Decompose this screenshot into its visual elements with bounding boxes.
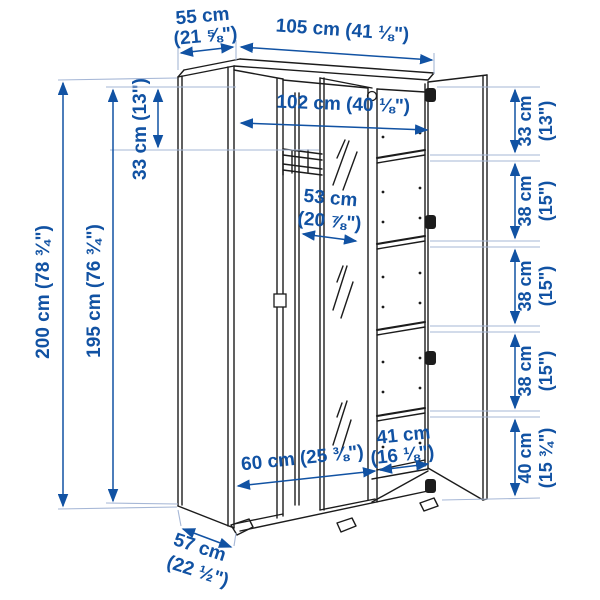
back-wall-edge-right — [377, 89, 425, 92]
dim-shelf-0-in: (13") — [536, 101, 556, 142]
dim-shelf-2-in: (15") — [536, 266, 556, 307]
dim-shelf-1-in: (15") — [536, 181, 556, 222]
base-and-feet — [231, 471, 438, 535]
dim-shelf-4-cm: 40 cm — [515, 432, 535, 483]
middle-foot — [337, 518, 356, 532]
dim-width-total: 105 cm (41 ⅛") — [241, 15, 434, 74]
dim-shelf-4: 40 cm (15 ¾") — [515, 420, 556, 495]
dim-shelf-2-cm: 38 cm — [515, 260, 535, 311]
product-dimension-diagram: 55 cm (21 ⅝") 105 cm (41 ⅛") 102 cm (40 … — [0, 0, 600, 600]
center-partition — [368, 88, 377, 502]
dim-mirror-door-cm: 53 cm — [303, 186, 359, 212]
dim-shelf-3-cm: 38 cm — [515, 345, 535, 396]
dim-left-section: 60 cm (25 ⅜") — [238, 442, 375, 486]
wardrobe-diagram-svg: 55 cm (21 ⅝") 105 cm (41 ⅛") 102 cm (40 … — [0, 0, 600, 600]
dim-rail-from-top-label: 33 cm (13") — [130, 78, 151, 180]
top-panel — [234, 59, 434, 80]
dim-shelf-3: 38 cm (15") — [515, 335, 556, 408]
hinge-icon — [425, 88, 436, 102]
clothes-rail — [283, 149, 322, 175]
dim-height-total-label: 200 cm (78 ¾") — [33, 225, 54, 359]
dim-left-section-label: 60 cm (25 ⅜") — [240, 442, 365, 476]
dim-height-interior-label: 195 cm (76 ¾") — [84, 224, 105, 358]
mirror-glass-hatching — [333, 140, 357, 452]
dim-width-total-label: 105 cm (41 ⅛") — [275, 15, 410, 45]
right-side-edge — [425, 82, 428, 468]
dim-mirror-door-in: (20 ⅞") — [297, 208, 363, 234]
dim-shelf-3-in: (15") — [536, 351, 556, 392]
right-door-open — [428, 75, 487, 500]
right-foot — [420, 498, 438, 511]
dim-shelf-2: 38 cm (15") — [515, 250, 556, 323]
dim-depth-top: 55 cm (21 ⅝") — [173, 4, 239, 70]
dim-width-interior-label: 102 cm (40 ⅛") — [276, 92, 410, 118]
hinge-icon — [425, 351, 436, 365]
dim-right-section: 41 cm (16 ⅛") — [370, 422, 436, 470]
dim-shelf-1: 38 cm (15") — [515, 164, 556, 238]
dim-shelf-column: 33 cm (13") 38 cm (15") 38 cm (15") 38 c… — [430, 87, 556, 500]
dim-width-interior: 102 cm (40 ⅛") — [241, 92, 427, 130]
dim-depth-top-in: (21 ⅝") — [173, 23, 239, 49]
dim-height-total: 200 cm (78 ¾") — [33, 78, 177, 509]
hinge-icon — [425, 215, 436, 229]
dim-mirror-door-width: 53 cm (20 ⅞") — [297, 186, 363, 241]
shelf-pin-holes — [382, 132, 422, 449]
dim-shelf-0: 33 cm (13") — [515, 90, 556, 152]
door-handle — [274, 294, 286, 307]
back-wall-edge — [283, 80, 368, 88]
dim-shelf-1-cm: 38 cm — [515, 175, 535, 226]
dim-shelf-0-cm: 33 cm — [515, 95, 535, 146]
dim-shelf-4-in: (15 ¾") — [536, 428, 556, 489]
dim-depth-total: 57 cm (22 ½") — [164, 510, 236, 592]
side-panel — [178, 59, 240, 528]
